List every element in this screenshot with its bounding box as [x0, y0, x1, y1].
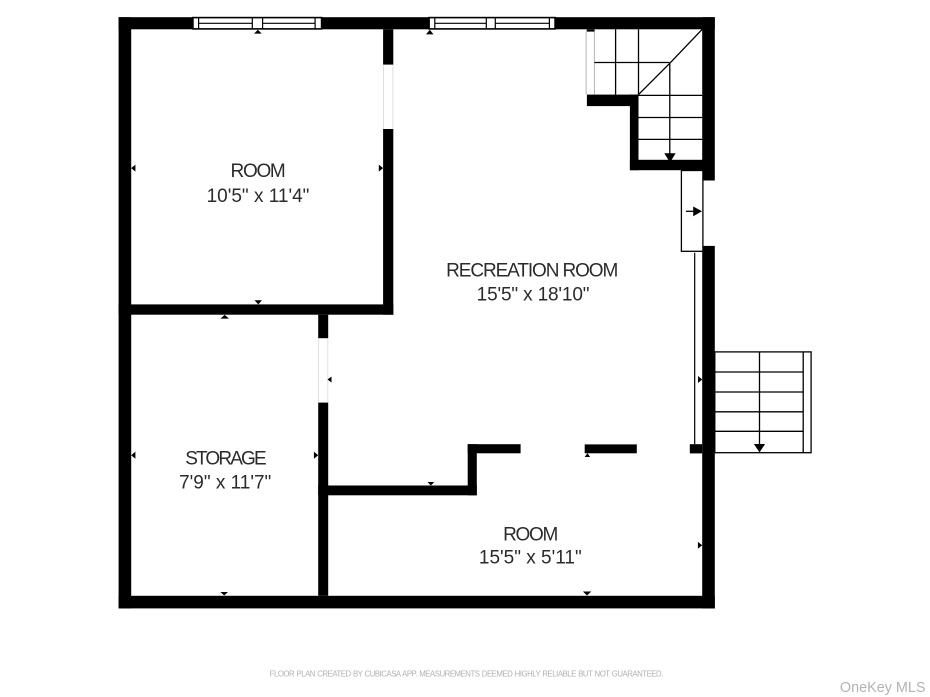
svg-text:OneKey MLS: OneKey MLS: [840, 680, 926, 696]
svg-text:15'5" x 5'11": 15'5" x 5'11": [479, 548, 582, 569]
svg-text:ROOM: ROOM: [503, 524, 557, 545]
svg-text:STORAGE: STORAGE: [185, 448, 266, 469]
svg-text:7'9" x 11'7": 7'9" x 11'7": [179, 472, 271, 493]
svg-text:RECREATION ROOM: RECREATION ROOM: [446, 260, 617, 281]
svg-text:ROOM: ROOM: [231, 161, 285, 182]
svg-text:15'5" x 18'10": 15'5" x 18'10": [477, 285, 590, 306]
svg-text:FLOOR PLAN CREATED BY CUBICASA: FLOOR PLAN CREATED BY CUBICASA APP. MEAS…: [270, 669, 664, 678]
svg-text:10'5" x 11'4": 10'5" x 11'4": [207, 186, 310, 207]
